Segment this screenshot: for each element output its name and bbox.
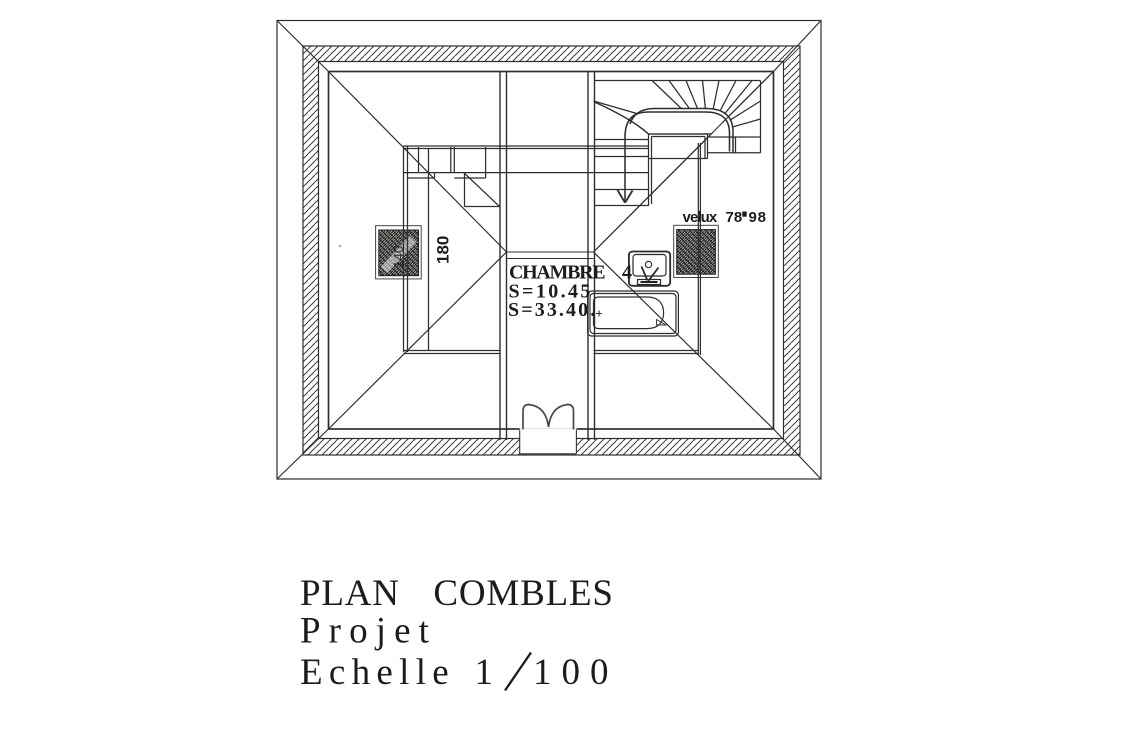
- svg-text:Projet: Projet: [300, 611, 437, 652]
- svg-text:100: 100: [533, 652, 619, 693]
- svg-text:PLAN COMBLES: PLAN COMBLES: [300, 573, 614, 614]
- svg-text:98: 98: [749, 209, 767, 226]
- svg-text:78: 78: [726, 209, 743, 226]
- svg-text:velux: velux: [683, 209, 718, 226]
- svg-text:S=33.40.: S=33.40.: [508, 299, 597, 321]
- svg-text:4: 4: [622, 262, 632, 284]
- svg-text:180: 180: [434, 236, 453, 264]
- svg-text:1: 1: [475, 652, 494, 693]
- svg-text:Echelle: Echelle: [300, 652, 455, 693]
